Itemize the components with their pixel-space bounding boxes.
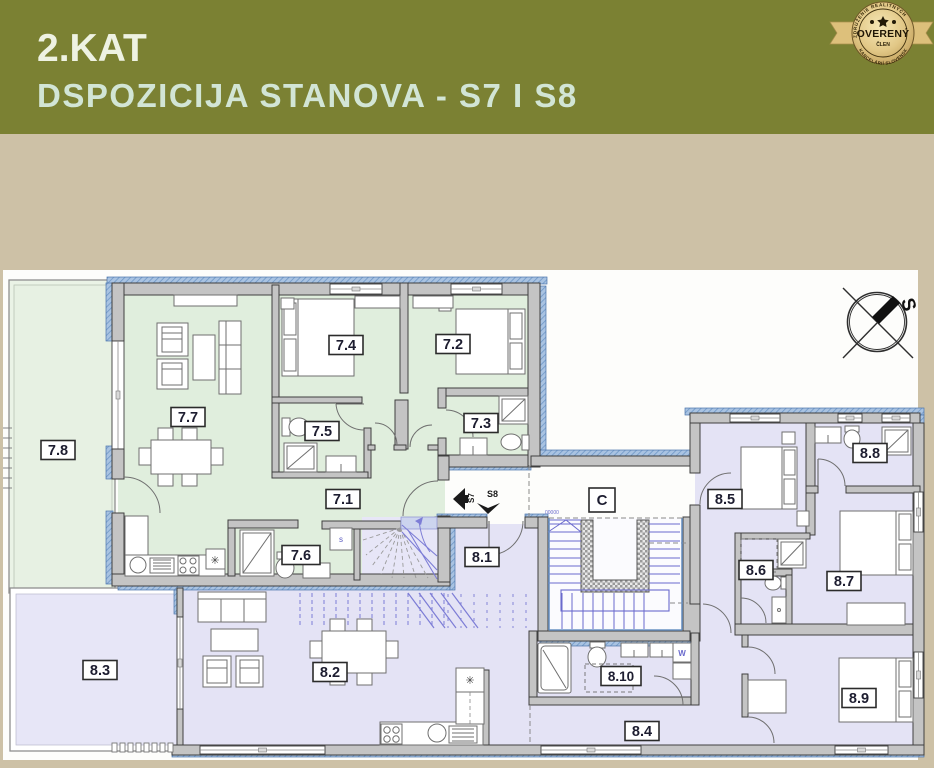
svg-text:00000: 00000 <box>545 510 559 516</box>
svg-text:7.8: 7.8 <box>48 443 68 459</box>
svg-text:8.8: 8.8 <box>860 446 880 462</box>
svg-text:✳: ✳ <box>465 675 474 687</box>
svg-text:8.6: 8.6 <box>746 563 766 579</box>
svg-text:7.3: 7.3 <box>471 416 491 432</box>
svg-text:7.7: 7.7 <box>178 410 198 426</box>
svg-text:7.2: 7.2 <box>443 337 463 353</box>
svg-text:8.10: 8.10 <box>608 669 634 684</box>
svg-text:OVERENÝ: OVERENÝ <box>857 27 910 40</box>
svg-text:7.1: 7.1 <box>333 492 353 508</box>
svg-text:W: W <box>678 649 686 658</box>
svg-text:8.4: 8.4 <box>632 724 652 740</box>
svg-text:8.1: 8.1 <box>472 550 492 566</box>
svg-text:C: C <box>597 492 608 509</box>
svg-text:8.3: 8.3 <box>90 663 110 679</box>
svg-text:7.5: 7.5 <box>312 424 332 440</box>
svg-text:7.6: 7.6 <box>291 548 311 564</box>
svg-text:S7: S7 <box>467 493 476 503</box>
svg-text:8.9: 8.9 <box>849 691 869 707</box>
svg-text:7.4: 7.4 <box>336 338 356 354</box>
svg-text:S8: S8 <box>487 489 498 499</box>
svg-text:✳: ✳ <box>210 555 219 567</box>
svg-text:8.5: 8.5 <box>715 492 735 508</box>
svg-text:s: s <box>339 535 343 544</box>
svg-text:8.2: 8.2 <box>320 665 340 681</box>
svg-text:2.KAT: 2.KAT <box>37 27 147 70</box>
svg-text:DSPOZICIJA STANOVA - S7 I S8: DSPOZICIJA STANOVA - S7 I S8 <box>37 77 578 114</box>
svg-text:ČLEN: ČLEN <box>876 41 890 48</box>
svg-text:8.7: 8.7 <box>834 574 854 590</box>
